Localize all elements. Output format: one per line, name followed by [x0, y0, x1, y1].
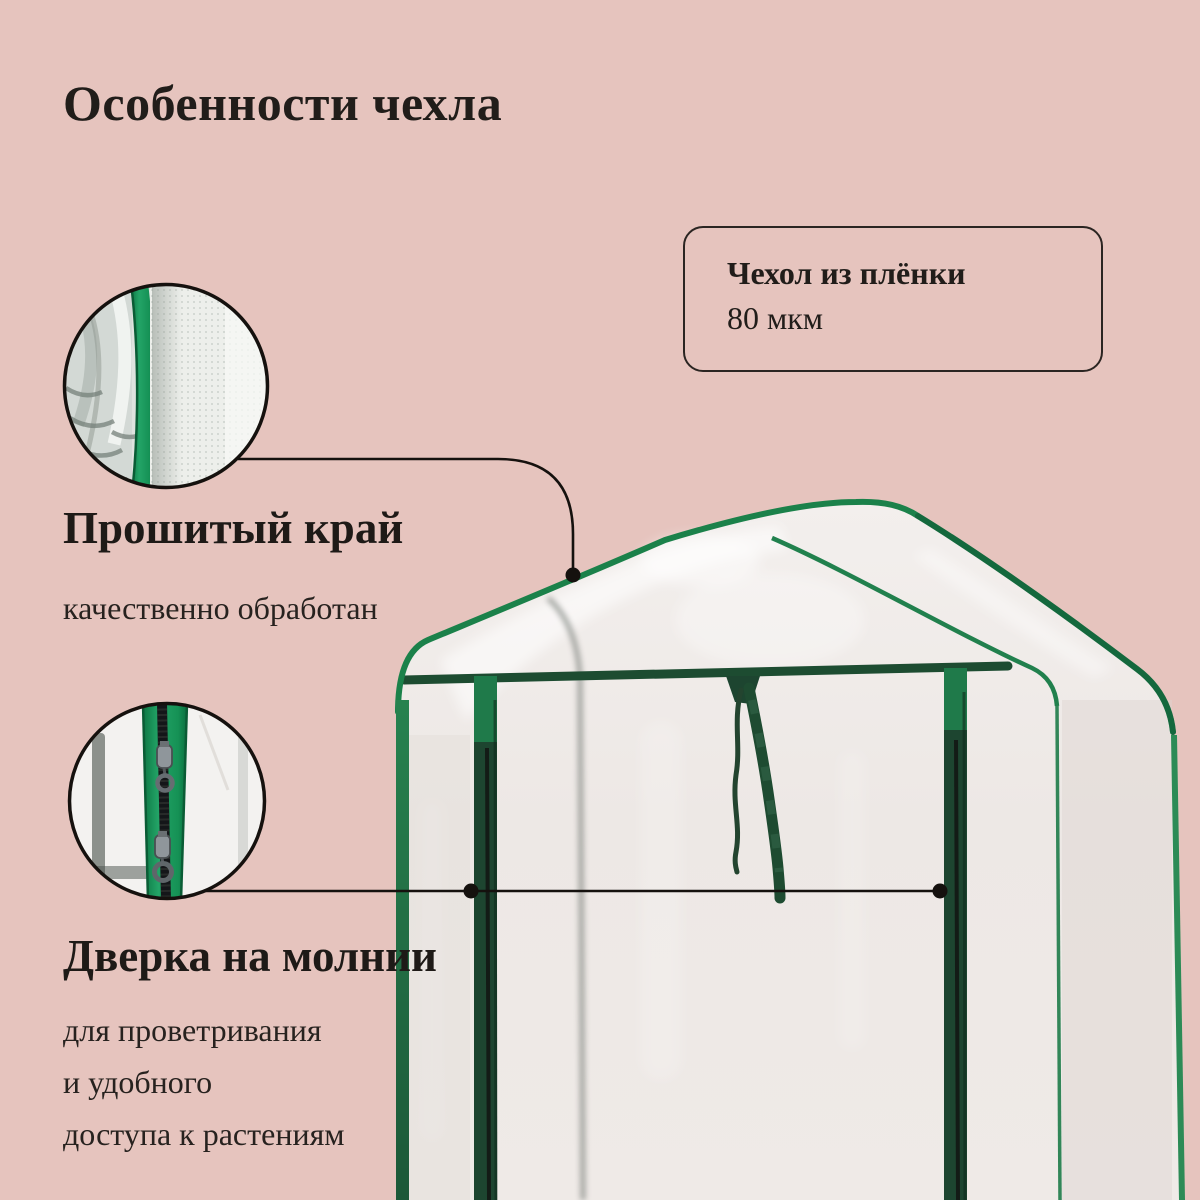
- poster-canvas: Особенности чехла Чехол из плёнки 80 мкм…: [0, 0, 1200, 1200]
- feature-zipper-door-line-1: для проветривания: [63, 1004, 437, 1056]
- feature-stitched-edge-description: качественно обработан: [63, 582, 403, 634]
- zipper-detail-circle: [69, 703, 267, 901]
- leader-dot-door-left: [464, 884, 479, 899]
- door-pole-left: [474, 676, 497, 1200]
- callout-line-1: Чехол из плёнки: [727, 253, 1091, 295]
- callout-line-2: 80 мкм: [727, 295, 1091, 341]
- feature-stitched-edge: Прошитый край качественно обработан: [63, 504, 403, 634]
- film-spec-callout: Чехол из плёнки 80 мкм: [683, 226, 1103, 372]
- feature-stitched-edge-heading: Прошитый край: [63, 504, 403, 554]
- feature-zipper-door-description: для проветривания и удобного доступа к р…: [63, 1004, 437, 1160]
- greenhouse-photo: [396, 502, 1182, 1200]
- feature-zipper-door-line-3: доступа к растениям: [63, 1108, 437, 1160]
- leader-dot-door-right: [933, 884, 948, 899]
- feature-zipper-door-line-2: и удобного: [63, 1056, 437, 1108]
- page-title: Особенности чехла: [63, 74, 502, 132]
- feature-zipper-door-heading: Дверка на молнии: [63, 932, 437, 982]
- stitched-edge-detail-circle: [62, 282, 275, 494]
- door-pole-right: [944, 668, 967, 1200]
- right-side-panel-shade: [1062, 700, 1172, 1200]
- feature-zipper-door: Дверка на молнии для проветривания и удо…: [63, 932, 437, 1160]
- leader-dot-roof: [566, 568, 581, 583]
